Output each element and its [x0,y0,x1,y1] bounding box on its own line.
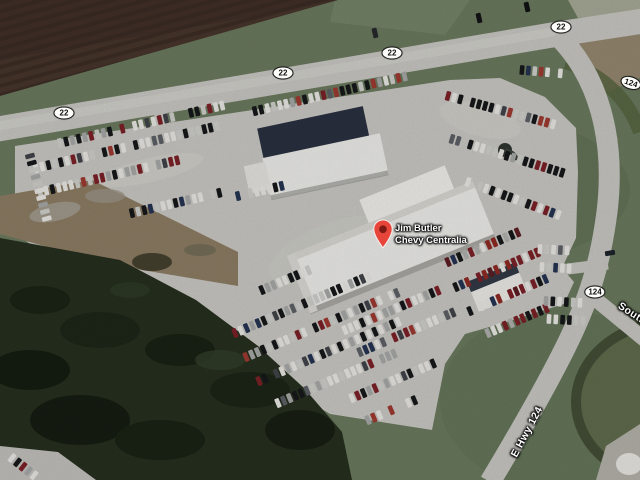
route-shield-22: 22 [382,47,403,60]
marker-title-line2: Chevy Centralia [395,235,467,247]
route-shield-22: 22 [54,107,75,120]
route-shield-124: 124 [619,74,640,93]
map-annotations: 22222222124124 SouthgateE Hwy 124 Jim Bu… [0,0,640,480]
route-shield-124: 124 [584,286,605,299]
marker-title-line1: Jim Butler [395,223,467,235]
road-name-label: E Hwy 124 [509,405,546,460]
location-pin-icon[interactable] [373,219,394,249]
route-shield-22: 22 [273,67,294,80]
marker-label: Jim Butler Chevy Centralia [395,223,467,247]
road-name-label: Southgate [616,300,640,340]
route-shield-22: 22 [551,21,572,34]
satellite-map-view[interactable]: 22222222124124 SouthgateE Hwy 124 Jim Bu… [0,0,640,480]
